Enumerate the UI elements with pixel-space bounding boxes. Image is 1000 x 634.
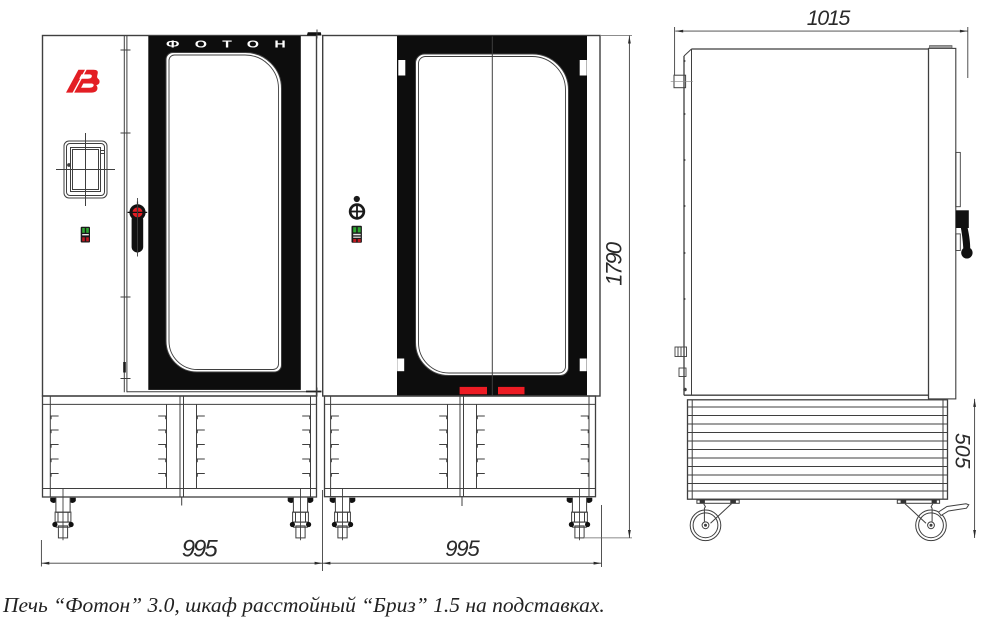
- svg-text:ФОТОН: ФОТОН: [166, 38, 301, 50]
- svg-text:995: 995: [182, 535, 219, 562]
- svg-text:Печь “Фотон” 3.0, шкаф рас: Печь “Фотон” 3.0, шкаф расстойный “Бриз”…: [2, 593, 605, 617]
- svg-text:1790: 1790: [602, 241, 627, 286]
- svg-text:1015: 1015: [807, 6, 852, 30]
- svg-text:995: 995: [445, 536, 480, 561]
- svg-text:505: 505: [951, 433, 974, 469]
